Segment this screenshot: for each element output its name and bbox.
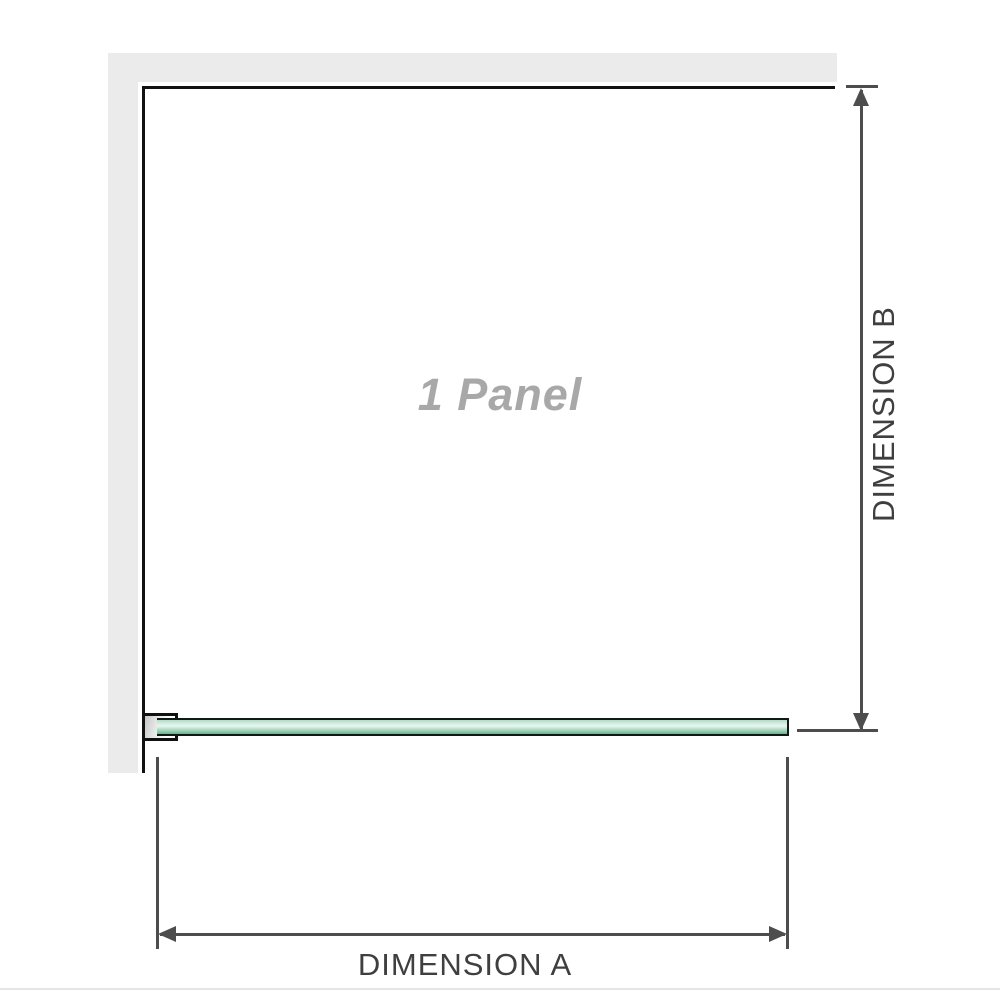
dimension-b-label: DIMENSION B xyxy=(866,306,902,522)
dimension-a-label: DIMENSION A xyxy=(358,947,572,983)
dimension-a-extension-right xyxy=(786,757,789,949)
dimension-a-line xyxy=(160,933,785,936)
glass-panel-bar xyxy=(157,718,789,736)
arrowhead-left-icon xyxy=(158,926,176,942)
bottom-divider-line xyxy=(0,988,1000,990)
panel-outline-left-edge xyxy=(142,86,145,773)
arrowhead-down-icon xyxy=(853,713,869,731)
arrowhead-right-icon xyxy=(769,926,787,942)
dimension-b-line xyxy=(860,90,863,729)
dimension-a-extension-left xyxy=(156,757,159,949)
diagram-canvas: 1 Panel DIMENSION B DIMENSION A xyxy=(0,0,1000,1000)
panel-count-label: 1 Panel xyxy=(418,369,583,421)
arrowhead-up-icon xyxy=(853,88,869,106)
panel-outline-top-edge xyxy=(142,86,835,89)
wall-left-bar xyxy=(108,53,138,773)
wall-top-bar xyxy=(108,53,837,82)
